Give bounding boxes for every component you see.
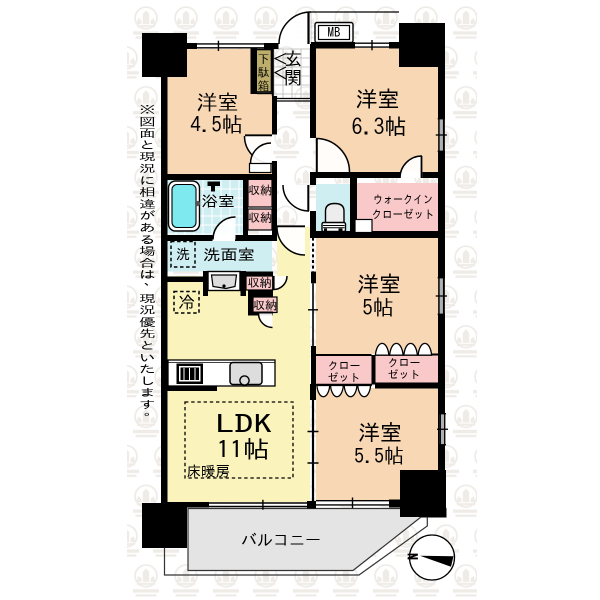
svg-text:浴室: 浴室 [201, 194, 235, 209]
svg-text:相: 相 [139, 186, 156, 198]
svg-text:収納: 収納 [248, 211, 272, 224]
svg-text:洋室: 洋室 [357, 273, 401, 295]
svg-text:床暖房: 床暖房 [187, 464, 231, 479]
svg-text:収納: 収納 [248, 184, 272, 197]
svg-text:洋室: 洋室 [358, 422, 402, 444]
svg-text:現: 現 [139, 151, 156, 163]
svg-text:が: が [139, 210, 156, 222]
svg-text:11帖: 11帖 [217, 437, 270, 461]
svg-text:況: 況 [139, 304, 156, 316]
svg-text:現: 現 [139, 292, 156, 304]
svg-text:4.5帖: 4.5帖 [190, 114, 243, 135]
svg-text:る: る [139, 233, 156, 245]
svg-text:収納: 収納 [248, 276, 272, 289]
svg-text:あ: あ [139, 221, 156, 233]
svg-text:と: と [139, 339, 156, 351]
svg-text:駄: 駄 [258, 66, 270, 78]
svg-text:先: 先 [139, 328, 156, 340]
svg-text:ウォークイン: ウォークイン [373, 194, 433, 206]
svg-text:ま: ま [139, 387, 156, 399]
svg-text:※: ※ [139, 103, 156, 115]
svg-text:LDK: LDK [216, 412, 273, 438]
svg-text:、: 、 [144, 275, 161, 287]
svg-text:優: 優 [139, 316, 156, 328]
svg-text:箱: 箱 [258, 79, 270, 92]
svg-text:6.3帖: 6.3帖 [352, 116, 407, 138]
svg-text:い: い [139, 351, 156, 363]
svg-text:ゼット: ゼット [388, 370, 421, 381]
svg-text:洗面室: 洗面室 [203, 247, 255, 262]
svg-text:し: し [139, 375, 156, 387]
svg-text:場: 場 [139, 245, 156, 257]
svg-text:違: 違 [139, 198, 156, 210]
svg-text:玄: 玄 [284, 51, 302, 69]
svg-text:5帖: 5帖 [362, 297, 394, 318]
svg-text:面: 面 [139, 127, 156, 139]
svg-text:と: と [139, 139, 156, 151]
svg-text:冷: 冷 [178, 295, 195, 312]
svg-text:N: N [407, 553, 420, 560]
svg-text:クロー: クロー [388, 358, 421, 369]
svg-text:関: 関 [284, 69, 302, 87]
svg-text:洗: 洗 [176, 247, 190, 261]
svg-text:クローゼット: クローゼット [372, 209, 435, 221]
svg-text:洋室: 洋室 [197, 92, 239, 113]
svg-text:洋室: 洋室 [356, 88, 400, 110]
svg-text:バルコニー: バルコニー [241, 531, 321, 548]
svg-text:下: 下 [258, 54, 270, 65]
svg-text:合: 合 [139, 257, 156, 269]
svg-text:MB: MB [328, 26, 341, 39]
svg-text:況: 況 [139, 162, 156, 174]
svg-text:収納: 収納 [253, 299, 277, 312]
svg-text:図: 図 [139, 115, 156, 127]
svg-text:。: 。 [144, 405, 161, 417]
svg-text:5.5帖: 5.5帖 [354, 446, 404, 466]
svg-text:クロー: クロー [328, 361, 361, 372]
svg-text:に: に [139, 174, 156, 186]
svg-text:た: た [139, 363, 156, 375]
svg-text:ゼット: ゼット [328, 373, 361, 384]
